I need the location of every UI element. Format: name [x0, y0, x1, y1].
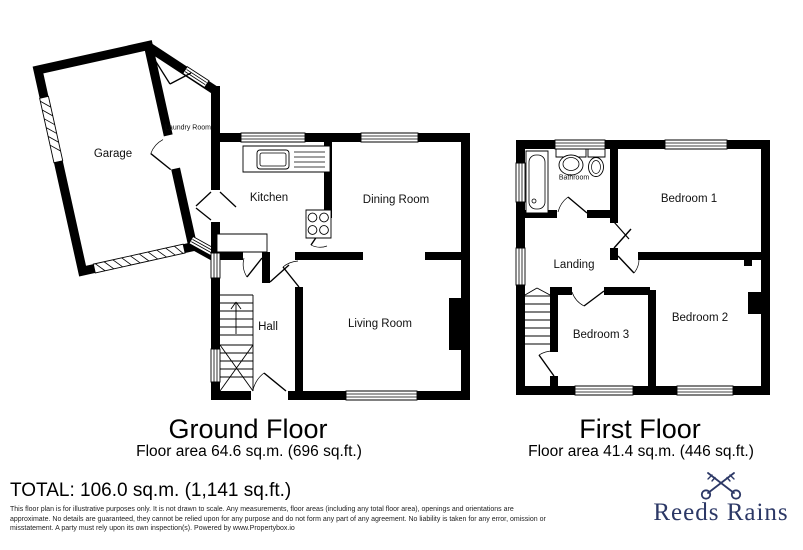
ground-floor-plan	[34, 44, 470, 400]
bathroom-bedroom1-wall	[610, 149, 618, 218]
stairs-first	[525, 288, 550, 344]
living-door-leaf	[283, 267, 299, 287]
total-area-label: TOTAL: 106.0 sq.m. (1,141 sq.ft.)	[10, 480, 291, 502]
bedroom2-window	[677, 386, 733, 395]
left-window-2	[516, 248, 525, 285]
hall-window-1	[211, 253, 220, 278]
toilet-icon	[588, 149, 605, 177]
room-label-laundry: Laundry Room	[165, 125, 211, 132]
brand-logo-text: Reeds Rains	[653, 499, 788, 527]
room-label-bedroom3: Bedroom 3	[573, 329, 629, 341]
stairs-ground	[220, 295, 253, 391]
bedroom3-door-leaf	[584, 291, 604, 306]
room-label-kitchen: Kitchen	[250, 192, 288, 204]
room-label-bedroom1: Bedroom 1	[661, 193, 717, 205]
ground-floor-title: Ground Floor	[168, 414, 327, 445]
bedroom1-bedroom2-wall	[638, 252, 761, 260]
garage-structure	[34, 44, 199, 276]
bathroom-door-leaf	[568, 197, 587, 213]
room-label-bathroom: Bathroom	[559, 175, 589, 182]
left-window-1	[516, 163, 525, 202]
bedroom3-window	[575, 386, 633, 395]
ground-floor-area: Floor area 64.6 sq.m. (696 sq.ft.)	[136, 443, 362, 461]
bath-icon	[526, 151, 548, 213]
front-door-leaf	[264, 373, 286, 391]
stairs-door-leaf	[539, 355, 554, 376]
bedroom3-bedroom2-wall	[648, 290, 656, 386]
bathroom-window	[555, 140, 605, 149]
floorplan-drawing	[0, 0, 803, 465]
sink-icon	[257, 150, 289, 169]
bedroom2-door-leaf	[618, 256, 634, 273]
kitchen-counter-2	[217, 234, 267, 252]
stairs-arrow-ground	[231, 302, 241, 334]
basin-icon	[556, 149, 586, 175]
bedroom1-window	[665, 140, 727, 149]
front-door-gap	[251, 391, 288, 400]
hall-living-wall	[295, 287, 303, 391]
laundry-kitchen-door-gap	[211, 190, 220, 222]
room-label-bedroom2: Bedroom 2	[672, 312, 728, 324]
first-floor-title: First Floor	[579, 414, 701, 445]
room-label-dining: Dining Room	[363, 194, 429, 206]
floorplan-canvas: Garage Laundry Room Kitchen Dining Room …	[0, 0, 803, 550]
disclaimer-line-2: approximate. No details are guaranteed, …	[10, 515, 546, 525]
room-label-landing: Landing	[554, 259, 595, 271]
disclaimer-line-1: This floor plan is for illustrative purp…	[10, 505, 546, 515]
kitchen-window	[241, 133, 305, 142]
disclaimer-line-3: misstatement. A party must rely upon its…	[10, 524, 546, 534]
room-label-living: Living Room	[348, 318, 412, 330]
bathroom-wall-right	[587, 210, 610, 218]
room-label-hall: Hall	[258, 321, 278, 333]
chimney-breast-first	[748, 292, 761, 314]
chimney-breast-ground	[449, 298, 461, 350]
first-windows	[516, 140, 733, 395]
living-window	[346, 391, 417, 400]
room-label-garage: Garage	[94, 148, 132, 160]
first-floor-area: Floor area 41.4 sq.m. (446 sq.ft.)	[528, 443, 754, 461]
stove-icon	[306, 210, 331, 238]
crossed-keys-icon	[696, 467, 746, 501]
dining-window	[361, 133, 418, 142]
disclaimer-text: This floor plan is for illustrative purp…	[10, 505, 546, 534]
hall-window-2	[211, 349, 220, 382]
